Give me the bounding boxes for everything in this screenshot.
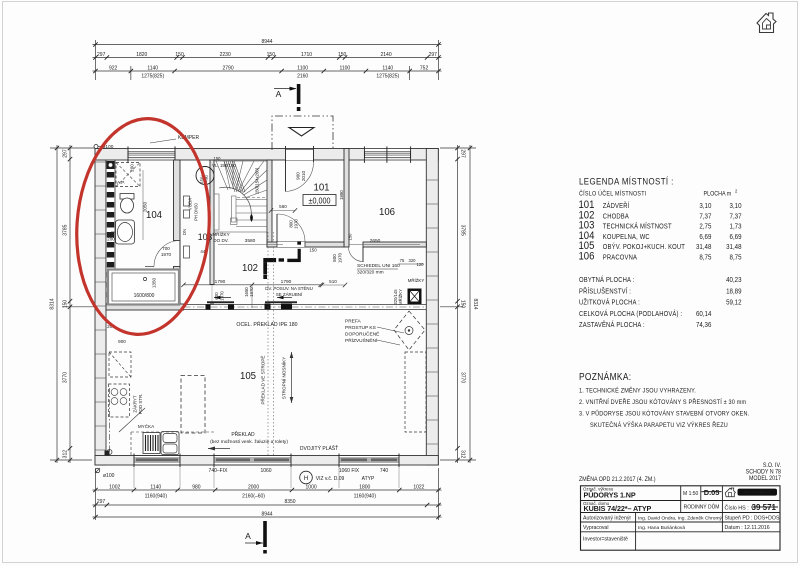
svg-text:74,36: 74,36: [696, 321, 712, 328]
svg-text:MYČKA: MYČKA: [138, 423, 155, 429]
svg-text:1002: 1002: [109, 485, 120, 491]
svg-text:6,69: 6,69: [730, 233, 742, 240]
svg-text:2160: 2160: [297, 74, 308, 80]
svg-text:POD STR.: POD STR.: [138, 394, 143, 415]
svg-text:18,89: 18,89: [726, 288, 742, 295]
svg-text:31,48: 31,48: [726, 244, 742, 251]
svg-text:297: 297: [63, 149, 69, 158]
svg-text:150: 150: [338, 52, 347, 58]
svg-text:600: 600: [214, 292, 219, 300]
svg-text:1970: 1970: [294, 219, 299, 229]
svg-text:2140: 2140: [381, 52, 392, 58]
svg-text:DN: DN: [182, 229, 187, 235]
svg-text:A: A: [245, 531, 251, 541]
svg-text:Investor=staveniště: Investor=staveniště: [583, 537, 628, 543]
svg-text:OBÝV. POKOJ+KUCH. KOUT: OBÝV. POKOJ+KUCH. KOUT: [603, 241, 685, 251]
svg-text:DVOJITÝ PLÁŠŤ: DVOJITÝ PLÁŠŤ: [300, 444, 338, 452]
svg-text:M 1:50: M 1:50: [683, 491, 699, 497]
svg-text:OBYTNÁ PLOCHA :: OBYTNÁ PLOCHA :: [579, 274, 634, 284]
svg-text:PLOCHA m: PLOCHA m: [704, 191, 732, 197]
svg-text:320: 320: [409, 258, 417, 263]
svg-text:7,37: 7,37: [699, 213, 711, 220]
svg-text:D.05: D.05: [704, 488, 720, 497]
svg-text:1710: 1710: [301, 52, 312, 58]
svg-text:A.P.: A.P.: [117, 180, 125, 185]
svg-text:ČÍSLO ÚČEL MÍSTNOSTI: ČÍSLO ÚČEL MÍSTNOSTI: [579, 190, 647, 198]
svg-text:3,10: 3,10: [730, 203, 742, 210]
svg-text:1160(940): 1160(940): [145, 494, 168, 500]
svg-text:SCHIEDEL UNI 160: SCHIEDEL UNI 160: [357, 263, 400, 269]
svg-text:102: 102: [242, 263, 258, 274]
svg-text:297: 297: [429, 52, 438, 58]
svg-text:1160(940): 1160(940): [354, 494, 377, 500]
svg-text:PŘEKLAD: PŘEKLAD: [231, 430, 255, 438]
svg-text:H: H: [304, 476, 308, 482]
svg-text:312: 312: [63, 450, 69, 459]
svg-text:8944: 8944: [261, 39, 272, 45]
svg-text:3785: 3785: [460, 225, 466, 236]
svg-text:KOUPELNA, WC: KOUPELNA, WC: [603, 233, 650, 241]
svg-text:740: 740: [380, 468, 389, 474]
svg-text:150: 150: [267, 52, 276, 58]
svg-text:RODINNÝ DŮM: RODINNÝ DŮM: [684, 504, 720, 511]
svg-text:ZASTAVĚNÁ PLOCHA :: ZASTAVĚNÁ PLOCHA :: [579, 319, 645, 329]
svg-text:2000: 2000: [248, 485, 259, 491]
svg-text:SKUTEČNÁ VÝŠKA PARAPETU VIZ VÝ: SKUTEČNÁ VÝŠKA PARAPETU VIZ VÝKRES ŘEZU: [590, 421, 728, 430]
svg-text:1000: 1000: [306, 485, 317, 491]
svg-text:1060 FIX: 1060 FIX: [339, 468, 360, 474]
svg-text:1140: 1140: [150, 485, 161, 491]
svg-text:59,12: 59,12: [726, 299, 742, 306]
svg-text:ZMĚNA OPD 21.2.2017 (4. ZM.): ZMĚNA OPD 21.2.2017 (4. ZM.): [579, 475, 656, 484]
svg-text:CELKOVÁ PLOCHA (PODLAHOVÁ) :: CELKOVÁ PLOCHA (PODLAHOVÁ) :: [579, 308, 682, 318]
svg-text:±0,000: ±0,000: [309, 196, 331, 205]
svg-text:SCHODY N 78: SCHODY N 78: [746, 469, 781, 475]
svg-text:PROSTUP KS: PROSTUP KS: [345, 325, 376, 331]
svg-text:VIZ v.č. D.09: VIZ v.č. D.09: [316, 476, 345, 482]
svg-text:752: 752: [420, 66, 429, 72]
svg-text:A: A: [276, 89, 282, 99]
svg-text:ZÁKRYT: ZÁKRYT: [133, 395, 138, 413]
svg-text:1140: 1140: [147, 66, 158, 72]
svg-text:PŘEKLAD VE STROPĚ: PŘEKLAD VE STROPĚ: [259, 355, 266, 404]
svg-text:(bez možností venk. žaluzie a: (bez možností venk. žaluzie a rolety): [210, 439, 288, 445]
svg-text:3770: 3770: [460, 372, 466, 383]
svg-text:SE ZÁRUBNÍ: SE ZÁRUBNÍ: [276, 292, 303, 297]
svg-text:1060: 1060: [260, 468, 271, 474]
svg-text:60,14: 60,14: [696, 311, 712, 318]
svg-text:800: 800: [332, 254, 337, 262]
svg-text:3. V PŮDORYSE JSOU KÓTOVÁNY S: 3. V PŮDORYSE JSOU KÓTOVÁNY STAVEBNÍ OTV…: [579, 410, 749, 418]
svg-text:1. TECHNICKÉ ZMĚNY JSOU VYHRA: 1. TECHNICKÉ ZMĚNY JSOU VYHRAZENY.: [579, 386, 696, 395]
svg-text:DV. POSUV. NA STĚNU: DV. POSUV. NA STĚNU: [265, 286, 313, 291]
svg-text:Stupeň PD : DOS+DOS: Stupeň PD : DOS+DOS: [725, 515, 780, 521]
svg-text:150: 150: [214, 156, 222, 161]
svg-text:Číslo HS :: Číslo HS :: [725, 505, 749, 512]
svg-text:DO DV.: DO DV.: [213, 238, 228, 243]
svg-text:8944: 8944: [261, 512, 272, 518]
svg-text:2,75: 2,75: [699, 223, 711, 230]
svg-text:2160(–60): 2160(–60): [242, 494, 265, 500]
svg-text:1350: 1350: [152, 277, 157, 288]
svg-text:31,48: 31,48: [696, 244, 712, 251]
svg-text:VODA: VODA: [188, 198, 193, 211]
svg-text:106: 106: [379, 207, 395, 218]
svg-text:POZNÁMKA:: POZNÁMKA:: [579, 371, 631, 382]
svg-text:MŘÍŽKY: MŘÍŽKY: [408, 278, 425, 283]
svg-text:297: 297: [97, 52, 106, 58]
svg-text:PRACOVNA: PRACOVNA: [603, 254, 638, 262]
svg-text:MODEL 2017: MODEL 2017: [749, 476, 781, 482]
svg-text:6,69: 6,69: [699, 233, 711, 240]
svg-text:106: 106: [579, 251, 595, 263]
svg-text:8314: 8314: [472, 298, 478, 309]
svg-text:2230: 2230: [220, 52, 231, 58]
svg-text:75: 75: [400, 258, 405, 263]
svg-text:STROPNÍ NOSNÍKY: STROPNÍ NOSNÍKY: [281, 357, 287, 399]
svg-text:150: 150: [348, 233, 353, 241]
svg-text:8314: 8314: [50, 298, 56, 309]
svg-text:S.O. IV.: S.O. IV.: [763, 463, 781, 469]
svg-text:1600/800: 1600/800: [134, 293, 155, 299]
svg-text:320/145: 320/145: [393, 289, 398, 305]
svg-text:980: 980: [192, 485, 201, 491]
svg-text:ATYP: ATYP: [362, 476, 375, 482]
svg-text:Datum : 12.11.2016: Datum : 12.11.2016: [725, 525, 770, 531]
svg-text:1275(825): 1275(825): [376, 74, 399, 80]
svg-text:OCEL. PŘEKLAD IPE 180: OCEL. PŘEKLAD IPE 180: [236, 320, 297, 328]
svg-text:3785: 3785: [63, 224, 69, 235]
svg-text:1100: 1100: [339, 66, 350, 72]
svg-text:320/320 mm: 320/320 mm: [357, 270, 384, 276]
svg-text:1022: 1022: [413, 485, 424, 491]
svg-text:120: 120: [417, 262, 425, 267]
svg-text:105: 105: [240, 371, 256, 382]
svg-text:Ing. David Ondra, Ing. Zdeněk: Ing. David Ondra, Ing. Zdeněk Chromý: [638, 515, 723, 521]
svg-text:ø100: ø100: [103, 473, 115, 479]
svg-text:200: 200: [130, 164, 135, 172]
svg-text:150: 150: [309, 248, 317, 253]
svg-text:2650: 2650: [370, 238, 381, 244]
svg-text:1275(825): 1275(825): [141, 74, 164, 80]
svg-text:1790: 1790: [215, 279, 226, 285]
svg-text:922: 922: [109, 66, 118, 72]
svg-text:40,23: 40,23: [726, 277, 742, 284]
svg-text:1880: 1880: [339, 190, 344, 200]
svg-text:1820: 1820: [136, 52, 147, 58]
svg-text:150: 150: [175, 52, 184, 58]
svg-text:ZÁDVEŘÍ: ZÁDVEŘÍ: [603, 200, 630, 210]
svg-text:1970: 1970: [220, 291, 225, 301]
svg-text:1790: 1790: [281, 279, 292, 285]
svg-text:312: 312: [460, 450, 466, 459]
svg-text:PŮDORYS 1.NP: PŮDORYS 1.NP: [584, 490, 636, 500]
svg-text:3580: 3580: [245, 238, 256, 244]
svg-text:2010: 2010: [301, 170, 306, 181]
svg-text:PREFA: PREFA: [345, 319, 362, 325]
svg-text:MŘÍŽKY: MŘÍŽKY: [212, 230, 229, 237]
svg-text:CHODBA: CHODBA: [603, 213, 630, 221]
svg-text:8350: 8350: [284, 499, 295, 505]
svg-text:1970: 1970: [161, 252, 172, 257]
svg-text:104: 104: [146, 210, 162, 221]
svg-text:VL. 150/190: VL. 150/190: [212, 163, 236, 168]
svg-text:1,73: 1,73: [730, 223, 742, 230]
svg-text:900: 900: [118, 339, 126, 344]
svg-text:DOPORUČENÉ: DOPORUČENÉ: [345, 331, 379, 338]
svg-text:Autorizovaný inženýr: Autorizovaný inženýr: [583, 515, 631, 521]
svg-text:510: 510: [329, 279, 337, 284]
svg-text:297: 297: [97, 499, 106, 505]
svg-text:2790: 2790: [223, 66, 234, 72]
svg-text:1800: 1800: [359, 485, 370, 491]
svg-text:1970: 1970: [249, 287, 254, 297]
svg-text:1970: 1970: [338, 252, 343, 263]
svg-text:KUBIS 74/22*– ATYP: KUBIS 74/22*– ATYP: [584, 504, 652, 513]
svg-text:2. VNITŘNÍ DVEŘE JSOU KÓTOVÁN: 2. VNITŘNÍ DVEŘE JSOU KÓTOVÁNY S PŘESNOS…: [579, 398, 746, 407]
svg-text:RD RÝMAŘOV: RD RÝMAŘOV: [744, 490, 772, 495]
svg-text:Ing. Hana Buriánková: Ing. Hana Buriánková: [638, 525, 685, 531]
svg-text:1140: 1140: [382, 66, 393, 72]
svg-text:101: 101: [313, 182, 329, 193]
svg-text:3770: 3770: [63, 372, 69, 383]
svg-text:8,75: 8,75: [730, 254, 742, 261]
svg-text:MŘÍŽKY: MŘÍŽKY: [398, 289, 403, 305]
svg-text:7,37: 7,37: [730, 213, 742, 220]
svg-text:Vypracoval: Vypracoval: [583, 525, 608, 531]
svg-text:1100: 1100: [297, 66, 308, 72]
svg-text:560: 560: [279, 204, 287, 209]
svg-text:LEGENDA MÍSTNOSTÍ :: LEGENDA MÍSTNOSTÍ :: [579, 176, 674, 187]
svg-text:150(154x260): 150(154x260): [255, 167, 260, 194]
svg-text:3,10: 3,10: [699, 203, 711, 210]
svg-text:8,75: 8,75: [699, 254, 711, 261]
svg-text:900: 900: [296, 172, 301, 180]
svg-text:700: 700: [162, 246, 170, 251]
svg-text:PŘÍSLUŠENSTVÍ :: PŘÍSLUŠENSTVÍ :: [579, 286, 631, 296]
svg-text:UŽITKOVÁ PLOCHA :: UŽITKOVÁ PLOCHA :: [579, 297, 640, 307]
svg-text:PH DN50: PH DN50: [194, 202, 199, 220]
svg-text:297: 297: [460, 149, 466, 158]
svg-text:200: 200: [107, 237, 115, 242]
svg-text:TECHNICKÁ MÍSTNOST: TECHNICKÁ MÍSTNOST: [603, 221, 672, 231]
svg-text:740–FIX: 740–FIX: [209, 468, 229, 474]
